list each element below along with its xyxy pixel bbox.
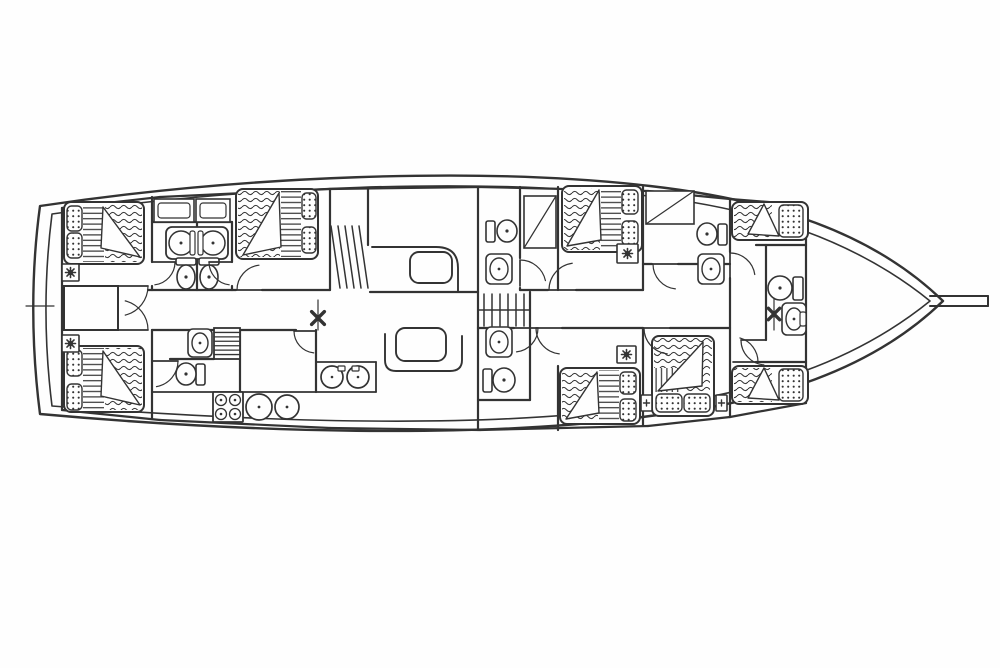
pillow bbox=[622, 221, 638, 245]
washbasin bbox=[486, 254, 512, 284]
toilet bbox=[483, 368, 515, 392]
pillow bbox=[620, 399, 636, 421]
toilet bbox=[486, 220, 517, 242]
double-bed bbox=[560, 368, 640, 424]
pillow bbox=[67, 206, 82, 231]
companionway-steps bbox=[478, 294, 530, 326]
washbasin bbox=[698, 254, 724, 284]
pillow bbox=[656, 394, 682, 412]
yacht-deck-plan-image bbox=[0, 0, 1000, 668]
toilet bbox=[176, 258, 196, 289]
galley-pot bbox=[275, 395, 299, 419]
door-swing bbox=[118, 286, 148, 315]
pillow bbox=[67, 233, 82, 258]
door-swing bbox=[152, 361, 178, 387]
door-swing bbox=[237, 265, 262, 290]
wardrobe-cabinet bbox=[524, 196, 556, 248]
dinette-table bbox=[396, 328, 446, 361]
door-swing bbox=[733, 338, 758, 362]
pillow bbox=[622, 190, 638, 214]
toilet bbox=[697, 223, 727, 245]
stairs-forward bbox=[331, 226, 368, 288]
door-swing bbox=[536, 328, 562, 354]
door-swing bbox=[549, 263, 576, 290]
dinette-table bbox=[410, 252, 452, 283]
nightstand bbox=[641, 395, 652, 411]
toilet bbox=[176, 363, 205, 385]
single-berth bbox=[732, 366, 808, 404]
washbasin bbox=[782, 303, 806, 335]
door-swing bbox=[118, 301, 148, 330]
door-swing bbox=[520, 260, 545, 286]
door-swing bbox=[152, 262, 175, 285]
wardrobe-cabinet bbox=[646, 191, 694, 224]
stove bbox=[213, 392, 243, 422]
twin-sink-vanity bbox=[166, 227, 228, 259]
single-berth bbox=[732, 202, 808, 240]
door-swing bbox=[514, 328, 538, 352]
wardrobe-cabinet bbox=[196, 199, 230, 222]
washbasin bbox=[188, 329, 212, 357]
nightstand bbox=[716, 395, 727, 411]
door-swing bbox=[730, 253, 755, 278]
corner-basin-unit bbox=[62, 335, 79, 352]
galley-sink bbox=[321, 366, 369, 388]
pillow bbox=[779, 205, 803, 237]
double-bed bbox=[64, 346, 144, 412]
double-bed bbox=[64, 202, 144, 264]
wardrobe-cabinet bbox=[154, 199, 194, 222]
mast-symbol bbox=[768, 298, 779, 330]
pillow bbox=[684, 394, 710, 412]
double-bed bbox=[652, 336, 714, 416]
pillow bbox=[620, 372, 636, 394]
mast-symbol bbox=[312, 300, 325, 330]
pillow bbox=[302, 227, 316, 253]
galley-pot bbox=[246, 394, 272, 420]
deck-plan-svg bbox=[0, 0, 1000, 668]
washbasin bbox=[486, 327, 512, 357]
stern-hatch bbox=[64, 286, 118, 330]
door-swing bbox=[294, 331, 316, 353]
pillow bbox=[67, 384, 82, 410]
door-swing bbox=[653, 264, 678, 289]
pillow bbox=[67, 350, 82, 376]
double-bed bbox=[562, 186, 642, 252]
corner-basin-unit bbox=[617, 244, 638, 263]
toilet bbox=[768, 276, 803, 300]
corner-basin-unit bbox=[62, 264, 79, 281]
crew-ladder bbox=[214, 328, 240, 359]
pillow bbox=[779, 369, 803, 401]
pillow bbox=[302, 193, 316, 219]
double-bed bbox=[236, 189, 318, 259]
corner-basin-unit bbox=[617, 346, 636, 363]
